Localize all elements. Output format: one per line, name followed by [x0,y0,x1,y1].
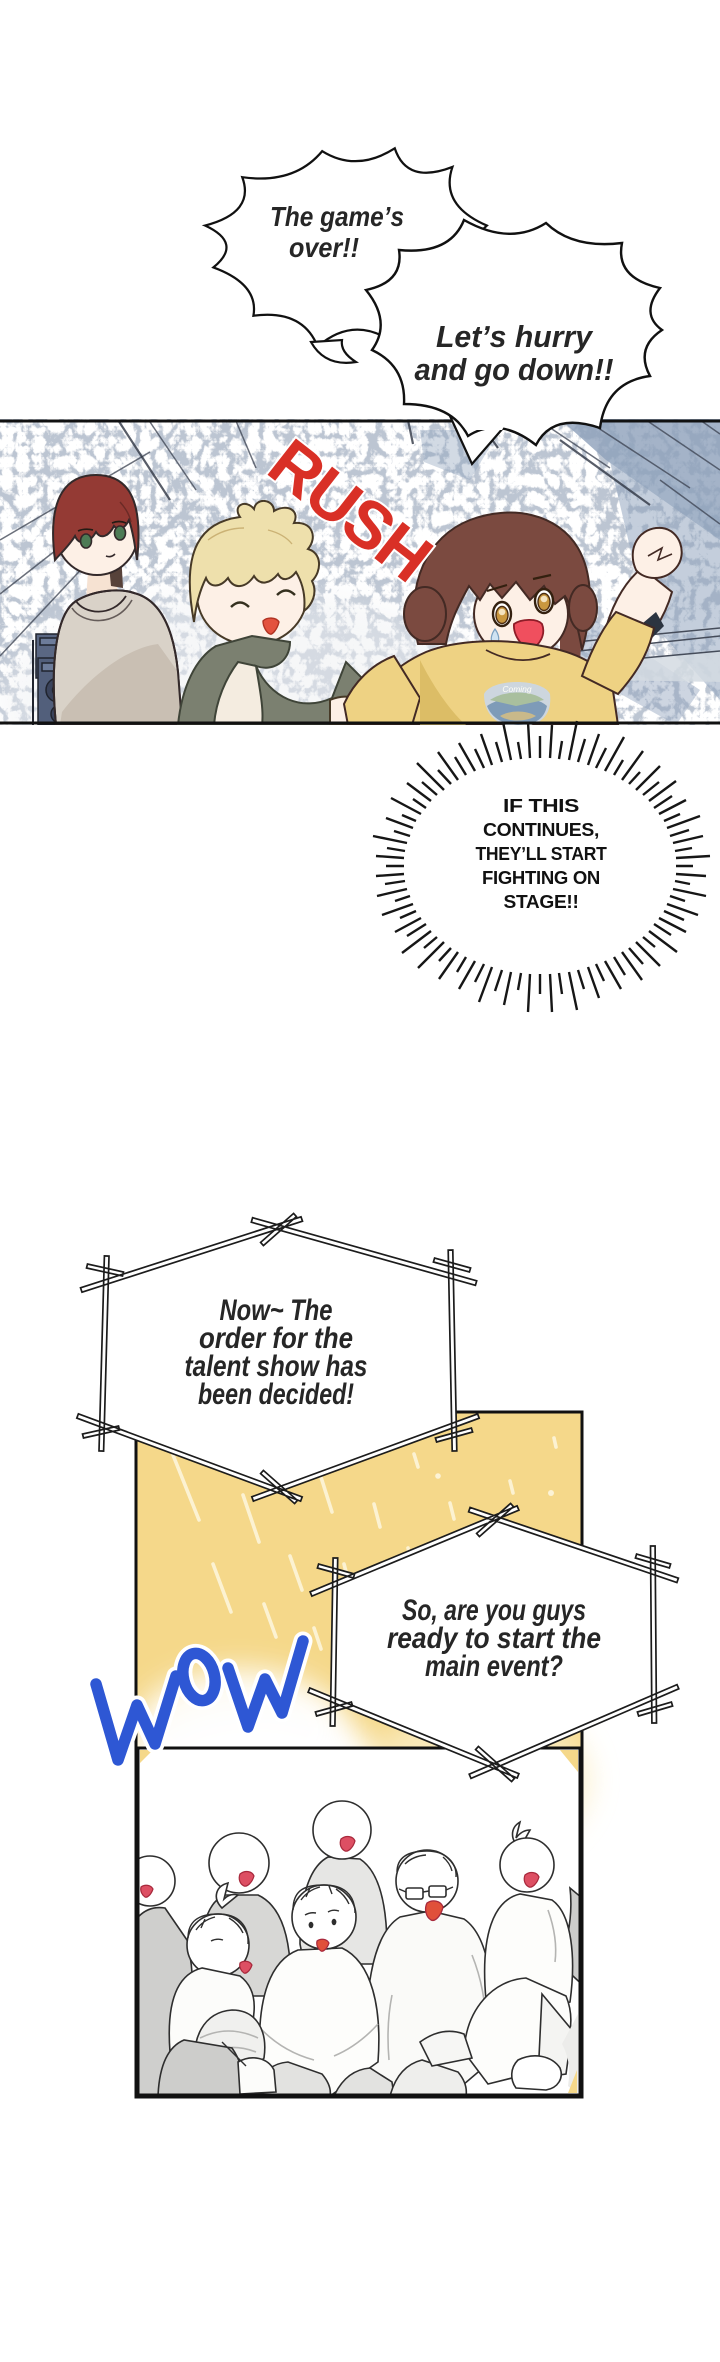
svg-text:FIGHTING ON: FIGHTING ON [482,868,600,888]
svg-text:The gameʼs: The gameʼs [270,201,404,232]
svg-text:and go down!!: and go down!! [415,352,614,387]
svg-text:THEYʼLL START: THEYʼLL START [476,844,607,864]
svg-text:been decided!: been decided! [198,1378,354,1411]
svg-text:main event?: main event? [425,1650,563,1683]
svg-text:Coming: Coming [502,684,532,694]
svg-text:over!!: over!! [289,232,359,263]
svg-text:IF THIS: IF THIS [503,796,579,816]
svg-text:CONTINUES,: CONTINUES, [483,820,599,840]
svg-text:STAGE!!: STAGE!! [504,892,579,912]
svg-text:Letʼs hurry: Letʼs hurry [436,319,594,354]
